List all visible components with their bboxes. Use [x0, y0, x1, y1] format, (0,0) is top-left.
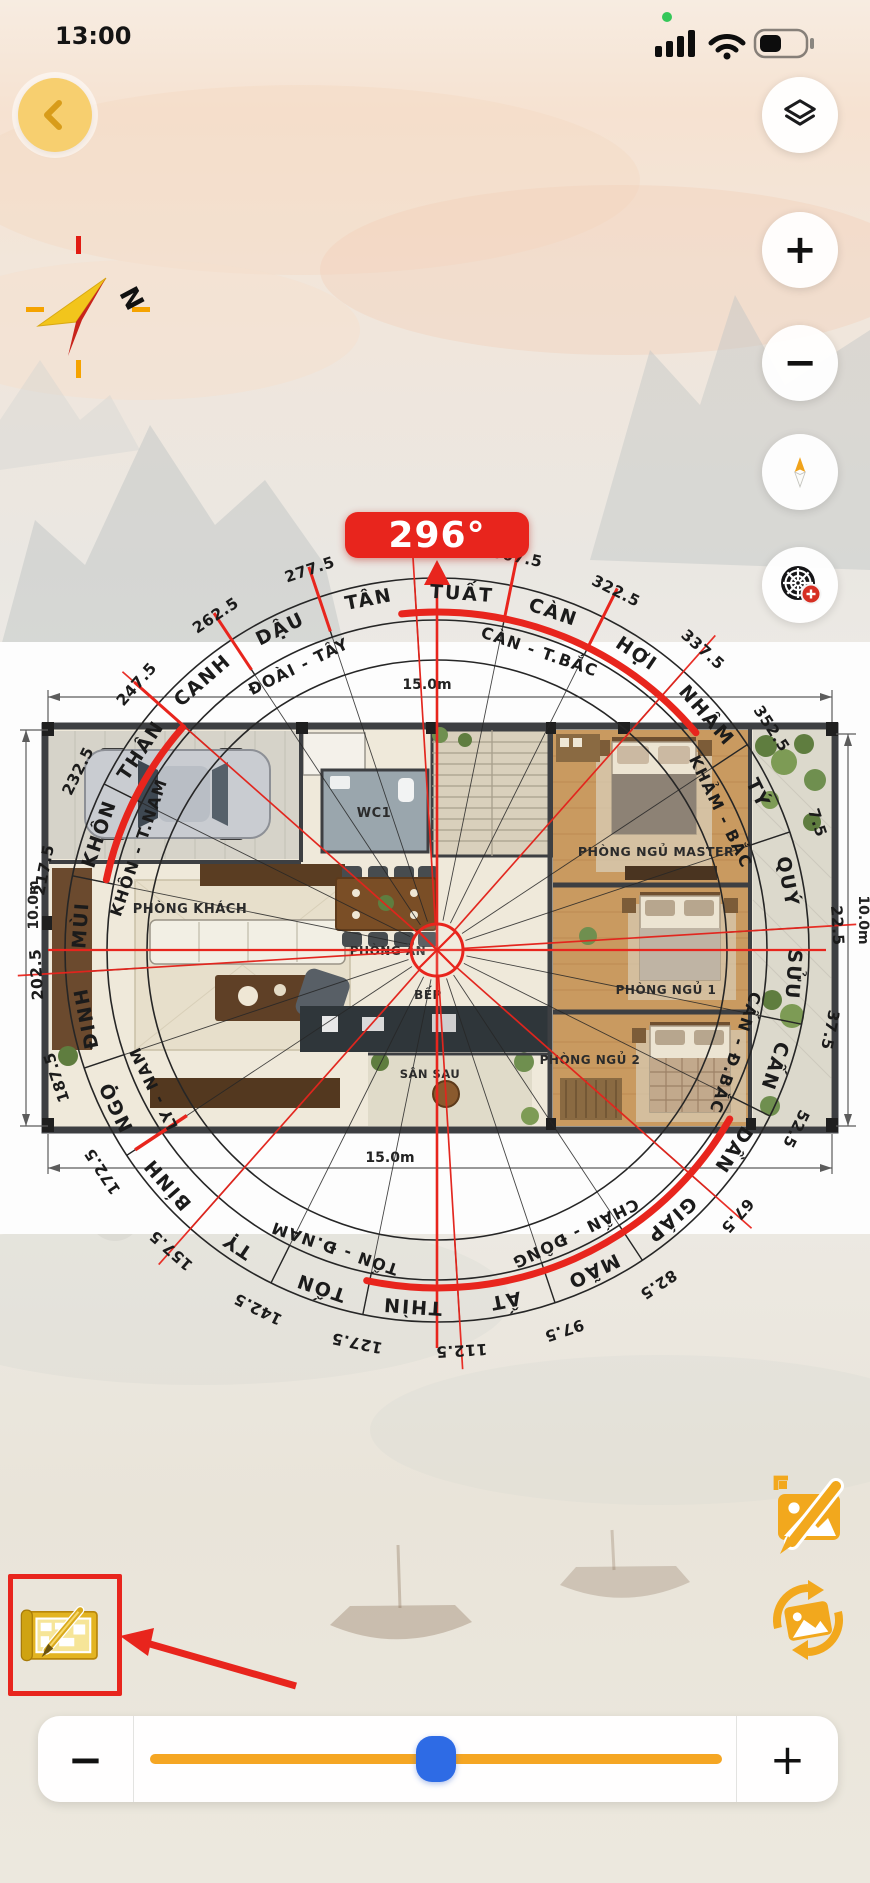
wifi-dot	[724, 53, 731, 60]
heading-value: 296°	[388, 515, 485, 556]
boat-silhouette	[560, 1566, 690, 1598]
rotation-slider: − +	[38, 1716, 838, 1802]
boat-mast	[612, 1530, 614, 1570]
mini-compass: N	[8, 228, 168, 388]
battery-icon	[755, 30, 814, 57]
degree-tick-label: 82.5	[637, 1266, 680, 1303]
zoom-out-button[interactable]: −	[762, 325, 838, 401]
hill-wash	[0, 1215, 510, 1385]
south-tick	[76, 360, 81, 378]
wifi-icon	[711, 37, 743, 50]
compass-needle-icon	[782, 454, 818, 490]
mountain-label: TUẤT	[429, 577, 495, 607]
zoom-in-button[interactable]: +	[762, 212, 838, 288]
minus-icon: −	[783, 343, 817, 383]
cellular-signal-icon	[655, 30, 695, 57]
degree-tick-label: 322.5	[589, 572, 643, 611]
mountain-label: ẤT	[487, 1287, 523, 1319]
change-image-button[interactable]	[764, 1576, 852, 1664]
status-time: 13:00	[55, 22, 131, 50]
boat-mast	[398, 1545, 400, 1608]
slider-thumb[interactable]	[416, 1736, 456, 1782]
plus-icon: +	[783, 230, 817, 270]
mountain-label: TỐN	[292, 1269, 349, 1310]
degree-tick-label: 142.5	[231, 1289, 285, 1328]
pointer-arrow	[106, 1594, 306, 1704]
mountain-label: MÃO	[564, 1249, 625, 1295]
floor-plan-tool-button[interactable]	[18, 1588, 102, 1676]
floor-plan-backdrop	[0, 642, 870, 1234]
degree-tick-label: 262.5	[189, 594, 242, 637]
degree-tick-label: 97.5	[542, 1315, 586, 1345]
privacy-indicator-dot	[662, 12, 672, 22]
mountain-label: TÂN	[343, 583, 395, 615]
luopan-rose-icon	[777, 562, 823, 608]
needle-arrow	[38, 278, 106, 356]
mountain-silhouette	[590, 295, 870, 570]
west-tick	[26, 307, 44, 312]
degree-tick-label: 112.5	[435, 1340, 488, 1361]
heading-badge: 296°	[345, 512, 529, 558]
boat-silhouette	[330, 1605, 472, 1639]
slider-minus-button[interactable]: −	[38, 1716, 134, 1802]
status-icons	[620, 0, 870, 60]
degree-tick-label: 277.5	[282, 553, 337, 586]
degree-tick-label: 127.5	[330, 1329, 384, 1357]
change-image-icon	[777, 1580, 839, 1660]
chevron-left-icon	[35, 95, 75, 135]
edit-image-icon	[776, 1478, 840, 1554]
mountain-label: THÌN	[381, 1293, 442, 1320]
add-luopan-button[interactable]	[762, 547, 838, 623]
layers-button[interactable]	[762, 77, 838, 153]
blueprint-icon	[21, 1610, 97, 1660]
slider-plus-button[interactable]: +	[736, 1716, 838, 1802]
edit-image-button[interactable]	[762, 1468, 854, 1560]
back-button[interactable]	[18, 78, 92, 152]
compass-needle-button[interactable]	[762, 434, 838, 510]
layers-icon	[781, 96, 819, 134]
mountain-silhouette	[0, 425, 345, 650]
mountain-label: CÀN	[526, 593, 581, 631]
north-tick	[76, 236, 81, 254]
